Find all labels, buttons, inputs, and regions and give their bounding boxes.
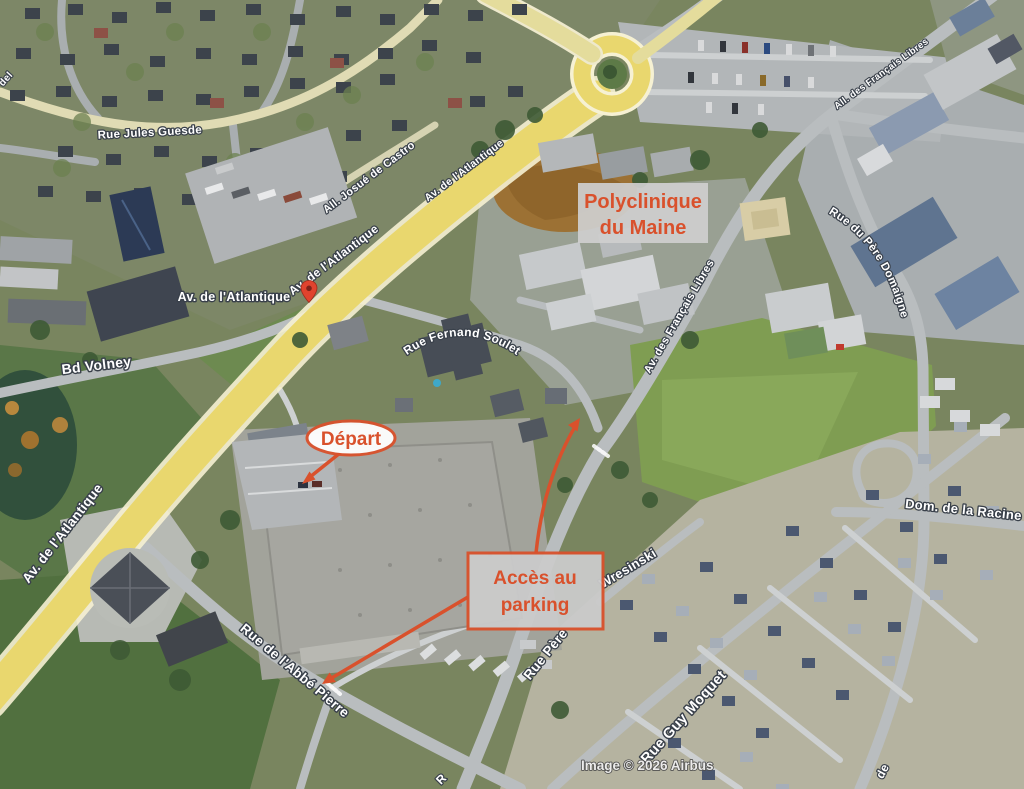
acces-parking-line1: Accès au [493,568,576,589]
polyclinique-line1: Polyclinique [584,191,702,213]
aerial-map-image: Rue Jules Guesde All. Josué de Castro Av… [0,0,1024,789]
acces-parking-line2: parking [501,595,570,616]
map-canvas: Rue Jules Guesde All. Josué de Castro Av… [0,0,1024,789]
depart-annotation: Départ [307,421,395,455]
acces-parking-annotation: Accès au parking [468,553,603,629]
depart-label: Départ [321,429,382,450]
street-label-av-atlantique-main: Av. de l'Atlantique [178,290,291,304]
imagery-attribution: Image © 2026 Airbus [581,758,714,773]
polyclinique-annotation: Polyclinique du Maine [578,183,708,243]
polyclinique-line2: du Maine [600,217,687,239]
